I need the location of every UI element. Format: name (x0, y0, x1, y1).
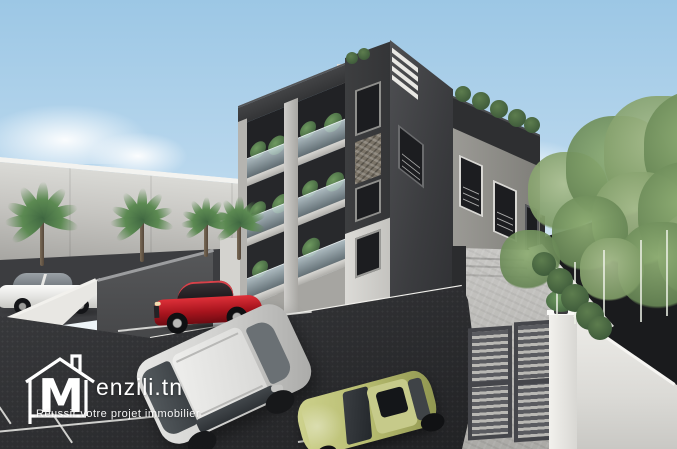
hedge-plant (588, 316, 612, 340)
brand-text: enzili.tn (96, 374, 183, 401)
hedge-plant (472, 92, 490, 110)
hedge-plant (490, 100, 508, 118)
hedge-plant (358, 48, 370, 60)
stone-panel (355, 133, 381, 184)
gate-right-panel (514, 320, 554, 443)
hedge-plant (346, 52, 358, 64)
gate-mid-rail (518, 378, 550, 385)
window (355, 179, 381, 222)
architectural-render-scene: M enzili.tn Réussir votre projet immobil… (0, 0, 677, 449)
lime-hatchback-car (294, 378, 442, 449)
tower-front-face (345, 42, 390, 326)
tree-trunk (640, 240, 642, 322)
window (398, 124, 424, 188)
gate-pillar (549, 313, 577, 449)
car-headlight (155, 302, 161, 306)
pillar (284, 98, 298, 334)
gate-left-panel (468, 325, 512, 440)
gate-mid-rail (472, 380, 508, 388)
hedge-plant (455, 86, 471, 102)
window (459, 155, 483, 218)
car-hood-highlight (300, 397, 349, 449)
tree-trunk (666, 230, 668, 316)
car-body (293, 367, 441, 449)
window (355, 81, 381, 136)
watermark: M enzili.tn Réussir votre projet immobil… (0, 340, 260, 440)
tagline-text: Réussir votre projet immobilier (36, 408, 200, 420)
panel-joint (69, 168, 71, 268)
hedge-plant (524, 117, 540, 133)
tree-foliage (580, 238, 644, 302)
